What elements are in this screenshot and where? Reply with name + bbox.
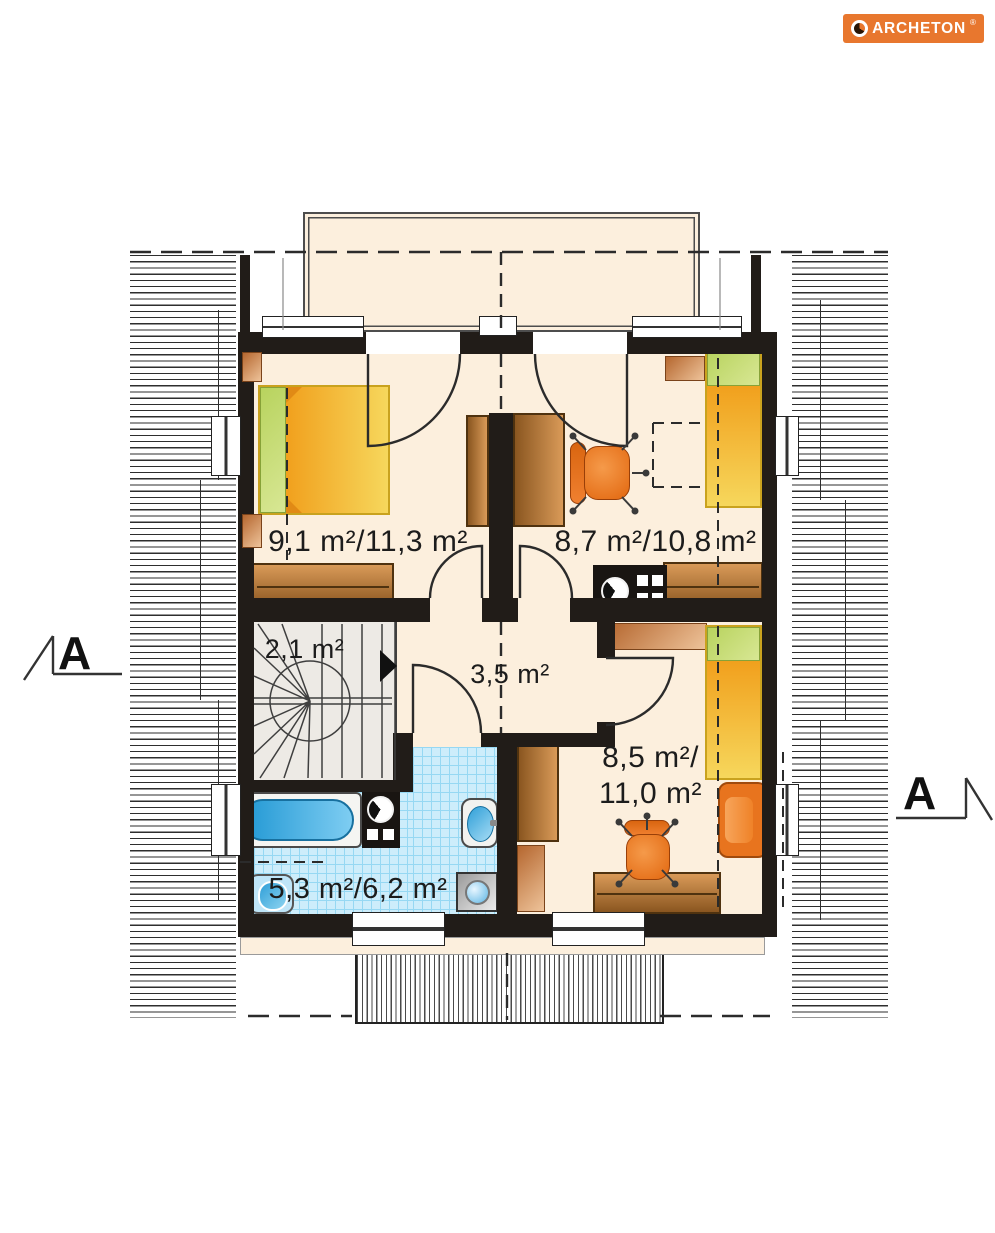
wall-stairs-bottom xyxy=(238,780,395,792)
bed-pillow xyxy=(707,627,760,661)
label-bedroom-right: 8,7 m²/10,8 m² xyxy=(543,524,768,560)
label-bathroom: 5,3 m²/6,2 m² xyxy=(258,872,458,907)
label-bedroom-bottom-line1: 8,5 m²/ xyxy=(583,740,718,776)
wall-hall-top xyxy=(254,598,430,622)
wall-bottom xyxy=(643,914,777,937)
window-left-upper xyxy=(211,416,241,476)
label-hall: 3,5 m² xyxy=(455,658,565,690)
single-bed xyxy=(705,348,762,508)
washer-drum xyxy=(465,880,490,905)
wall-left-gable xyxy=(240,255,250,334)
bed-pillow xyxy=(707,350,760,386)
window-left-lower xyxy=(211,784,241,856)
archeton-logo-icon xyxy=(851,20,868,37)
bed-mattress xyxy=(286,387,388,513)
office-chair-seat xyxy=(584,446,630,500)
label-bedroom-bottom-line2: 11,0 m² xyxy=(583,776,718,812)
cistern xyxy=(383,829,394,840)
bed-pillow xyxy=(260,387,286,513)
roof-step-line xyxy=(820,720,821,920)
window-right-lower xyxy=(775,784,799,856)
toilet-unit xyxy=(362,792,400,848)
wall-bath-corner xyxy=(393,733,413,792)
bed-mattress xyxy=(707,386,760,506)
section-marker-a-right: A xyxy=(903,766,936,820)
shelf-cell xyxy=(652,575,663,586)
window-top-left xyxy=(262,316,364,338)
label-staircase: 2,1 m² xyxy=(252,633,357,665)
desk-seam xyxy=(597,893,716,895)
roof-hatch-right xyxy=(792,255,888,1018)
blanket-fold xyxy=(286,387,302,403)
armchair-seat xyxy=(725,797,753,843)
dresser-seam xyxy=(257,586,390,588)
desk xyxy=(513,413,565,527)
toilet-bowl xyxy=(367,796,394,823)
wall-bedroom3-left xyxy=(597,622,615,658)
dresser-seam xyxy=(667,586,759,588)
armchair xyxy=(718,782,768,858)
registered-trademark-icon: ® xyxy=(970,18,976,27)
wall-center xyxy=(489,413,513,598)
balcony xyxy=(303,212,700,332)
window-top-right xyxy=(632,316,742,338)
wall-bottom xyxy=(238,914,352,937)
wall-bottom xyxy=(443,914,552,937)
window-bottom-left xyxy=(352,912,445,946)
washing-machine xyxy=(456,872,498,912)
window-bottom-right xyxy=(552,912,645,946)
shelf xyxy=(665,356,705,381)
bottom-sill-band xyxy=(240,937,765,955)
wall-hall-top xyxy=(570,598,777,622)
label-bedroom-left: 9,1 m²/11,3 m² xyxy=(252,524,484,560)
shelf-cell xyxy=(637,575,648,586)
roof-hatch-left xyxy=(130,255,236,1018)
double-bed xyxy=(258,385,390,515)
wall-right-gable xyxy=(751,255,761,334)
bathtub-basin xyxy=(242,799,354,841)
wardrobe xyxy=(517,742,559,842)
wardrobe xyxy=(466,415,489,527)
archeton-logo: ARCHETON ® xyxy=(843,14,984,43)
section-marker-a-left: A xyxy=(58,626,91,680)
lower-balcony-rail xyxy=(355,953,664,1024)
label-bedroom-bottom: 8,5 m²/ 11,0 m² xyxy=(583,740,718,812)
cistern xyxy=(367,829,378,840)
roof-step-line xyxy=(820,300,821,500)
nightstand xyxy=(242,352,262,382)
roof-step-line xyxy=(845,500,846,720)
window-right-upper xyxy=(775,416,799,476)
wall-bath-right xyxy=(497,747,517,914)
wall-hall-stub xyxy=(482,598,518,622)
wardrobe xyxy=(517,845,545,912)
shelf xyxy=(607,623,707,650)
window-top-center xyxy=(479,316,517,336)
archeton-logo-text: ARCHETON xyxy=(872,20,966,38)
blanket-fold xyxy=(286,497,302,513)
office-chair-seat xyxy=(626,834,670,880)
roof-step-line xyxy=(200,480,201,700)
